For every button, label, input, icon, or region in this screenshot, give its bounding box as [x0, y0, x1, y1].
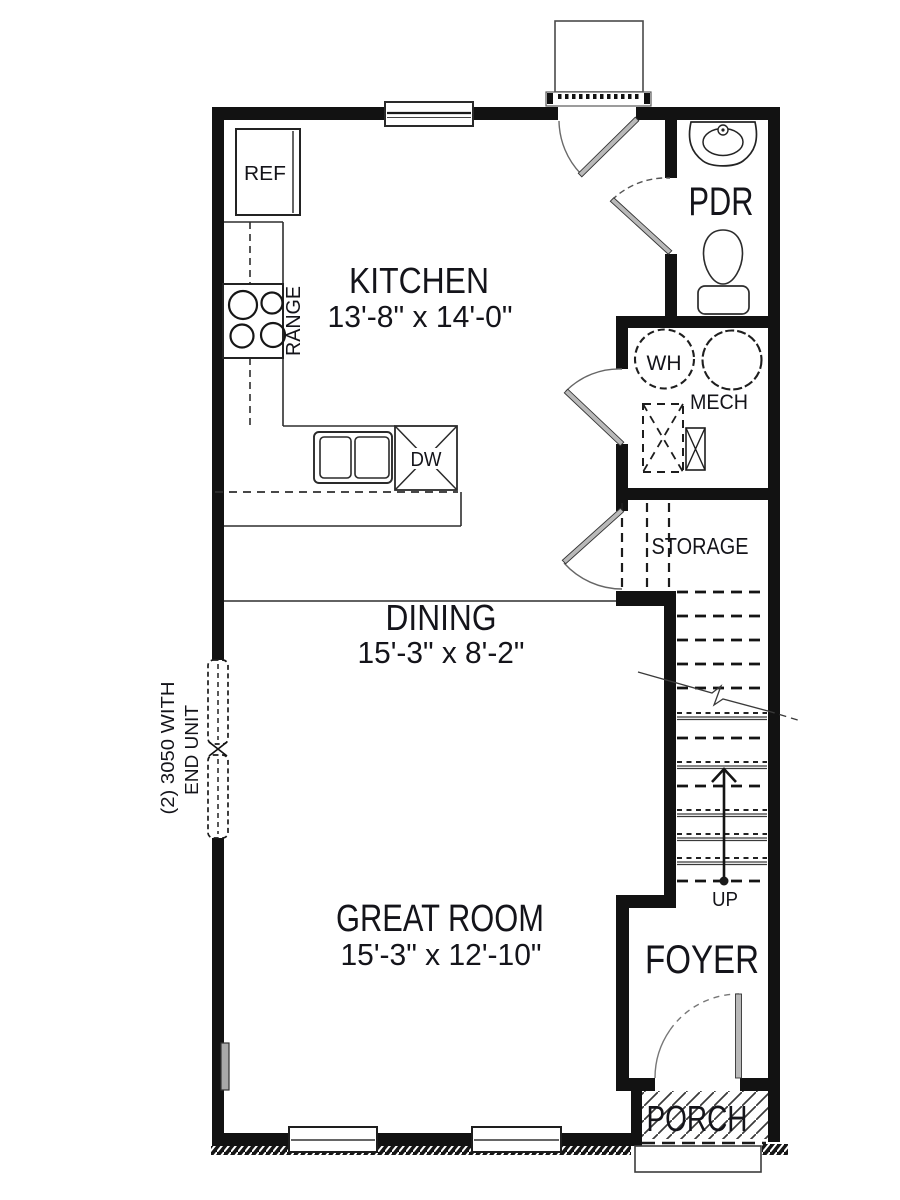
svg-text:PDR: PDR	[689, 180, 754, 224]
svg-text:STORAGE: STORAGE	[652, 533, 749, 559]
svg-text:WH: WH	[647, 352, 682, 375]
svg-text:UP: UP	[712, 889, 738, 911]
svg-text:KITCHEN: KITCHEN	[349, 260, 489, 301]
svg-text:GREAT ROOM: GREAT ROOM	[336, 898, 544, 940]
svg-text:DINING: DINING	[386, 597, 497, 638]
svg-text:DW: DW	[411, 449, 442, 471]
svg-text:15'-3" x 8'-2": 15'-3" x 8'-2"	[358, 635, 525, 670]
svg-text:(2) 3050 WITH: (2) 3050 WITH	[158, 682, 178, 815]
svg-text:REF: REF	[244, 163, 286, 185]
svg-text:PORCH: PORCH	[647, 1098, 748, 1139]
svg-text:END UNIT: END UNIT	[182, 705, 202, 795]
svg-text:15'-3" x 12'-10": 15'-3" x 12'-10"	[341, 937, 542, 972]
svg-text:RANGE: RANGE	[283, 286, 305, 356]
svg-text:MECH: MECH	[690, 391, 748, 414]
svg-text:13'-8" x 14'-0": 13'-8" x 14'-0"	[328, 299, 513, 334]
svg-text:FOYER: FOYER	[645, 938, 759, 982]
